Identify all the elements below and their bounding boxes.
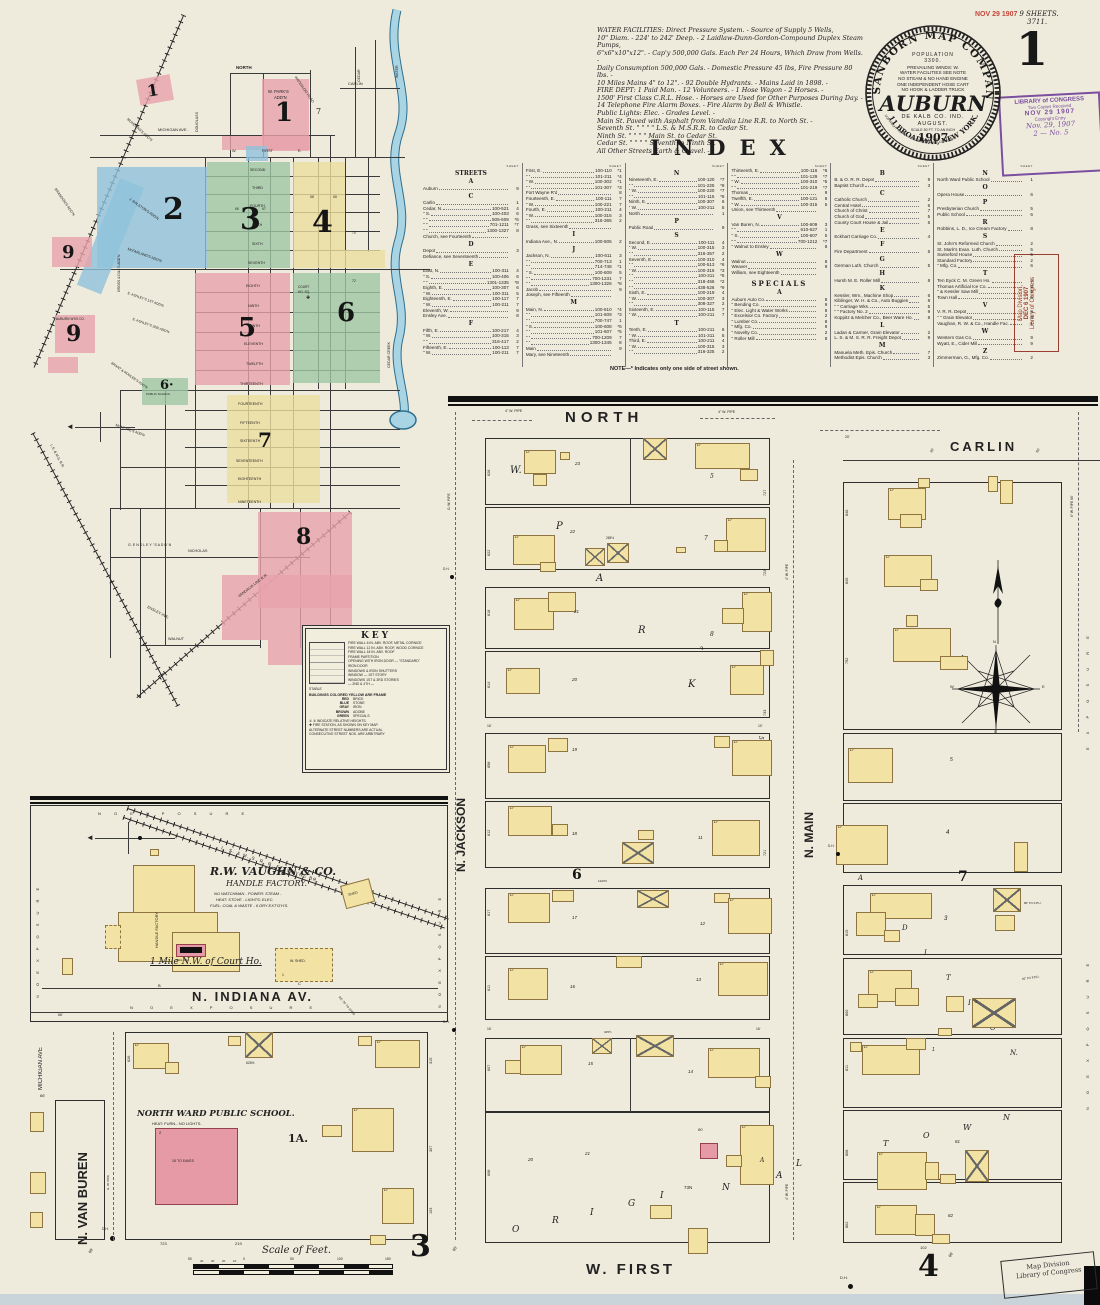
map-label: 50 <box>188 1258 192 1261</box>
map-label <box>630 1038 631 1112</box>
index-table: SHEETSTREETSAAuburn9CCarlin1Cedar, N.100… <box>420 163 1036 367</box>
building <box>592 1038 612 1054</box>
index-entry: German Luth. Church5 <box>834 263 930 269</box>
map-label: 22 <box>570 530 575 535</box>
index-column: SHEETFirst, E.100-110*1" "101-211*4" W.1… <box>522 163 625 367</box>
map-label <box>128 822 129 854</box>
map-label: ◄ <box>66 423 74 431</box>
building: D <box>513 535 555 565</box>
building <box>150 849 159 856</box>
hydrant-dot <box>450 575 454 579</box>
index-entry: Fire Department6 <box>834 249 930 255</box>
map-label: D <box>902 925 908 932</box>
index-entry: " Roller Mill8 <box>731 336 827 342</box>
map-label: 626 <box>128 1046 132 1062</box>
map-label: E. <box>298 150 302 154</box>
map-label: 611 <box>488 975 492 991</box>
index-entry: Robbins, L. D., Ice Cream Factory8 <box>937 226 1033 232</box>
map-label: NINETEENTH <box>238 501 261 505</box>
received-date: NOV 29 1907 <box>975 11 1017 18</box>
building <box>858 994 878 1008</box>
map-label: CEDAR CREEK <box>388 308 392 368</box>
index-section-letter: R <box>937 219 1033 226</box>
map-label: O <box>512 1226 519 1235</box>
map-label: 21 <box>574 610 579 615</box>
building <box>760 650 774 666</box>
pink-building <box>700 1143 718 1159</box>
index-section-letter: F <box>834 241 930 248</box>
map-label: N. <box>1010 1050 1018 1057</box>
map-label: D.H. <box>840 1276 848 1280</box>
map-label: 20 <box>572 678 577 683</box>
map-label: 11 <box>698 836 703 841</box>
specials-header: SPECIALS <box>731 279 827 288</box>
map-label: I <box>590 1209 594 1218</box>
map-label: NORTH <box>565 410 643 425</box>
map-label: 3 <box>944 916 947 922</box>
index-section-letter: Z <box>937 348 1033 355</box>
map-label: THIRTEENTH <box>240 383 263 387</box>
map-label: 802 <box>846 1212 850 1228</box>
map-label <box>472 420 532 421</box>
sheet-count: 9 SHEETS. <box>1019 10 1058 18</box>
map-label: G. E N S L E Y ' S A D D' N <box>128 544 171 548</box>
index-entry: " Mfg. Co.6 <box>937 263 1033 269</box>
building: D <box>732 740 772 776</box>
index-entry: " "316-3252 <box>629 349 725 355</box>
map-label: NICHOLAS <box>188 550 207 554</box>
building <box>322 1125 342 1137</box>
map-label: 1 <box>932 1048 935 1053</box>
map-label: E <box>1042 685 1045 689</box>
building <box>925 1162 939 1180</box>
building <box>906 615 918 627</box>
map-label: 815 <box>846 920 850 936</box>
sheet-label: SHEET <box>834 164 930 168</box>
map-label: N. MAIN <box>803 778 815 858</box>
map-label: W. FIRST <box>586 1262 675 1277</box>
index-entry: North Ward Public School1 <box>937 177 1033 183</box>
map-label: 20 <box>222 1260 225 1263</box>
map-label: DOUGLASS <box>196 88 200 132</box>
index-entry: North1 <box>629 211 725 217</box>
key-footnote: CONSECUTIVE STREET NOS. ARE ARBITRARY <box>309 732 443 737</box>
key-row: STABLE <box>309 687 443 692</box>
district-number: 1 <box>275 100 293 126</box>
map-label: PUBLIC SCHOOL <box>146 393 170 396</box>
map-label: 10 <box>233 1260 236 1263</box>
index-section-letter: W <box>731 251 827 258</box>
map-label: I <box>968 1000 971 1007</box>
building: D <box>375 1040 420 1068</box>
index-entry: " W.100-2117 <box>629 312 725 318</box>
building <box>938 1028 952 1036</box>
building: D <box>508 806 552 836</box>
index-section-letter: F <box>423 320 519 327</box>
map-label: SECOND <box>250 169 265 173</box>
map-label: FUEL: COAL & WASTE - 6 DRY EXT'G'H'S. <box>210 904 288 908</box>
index-section-letter: K <box>834 285 930 292</box>
building <box>972 998 1016 1028</box>
map-label: 81 <box>955 1140 960 1145</box>
map-label: 70 <box>352 232 356 235</box>
map-label: N <box>722 1184 730 1193</box>
map-label <box>193 1264 393 1269</box>
index-section-letter: D <box>423 241 519 248</box>
building <box>884 930 900 942</box>
map-label: TENTH <box>248 325 260 329</box>
building <box>714 540 728 552</box>
map-label: 16' <box>487 1028 491 1031</box>
map-label <box>0 1294 1100 1305</box>
map-label: 100 <box>337 1258 343 1261</box>
district-number: 9 <box>66 323 81 345</box>
building <box>906 1038 926 1050</box>
map-label: L <box>796 1160 802 1169</box>
map-label: FOURTEENTH <box>238 403 263 407</box>
map-label: HANDLE FACTORY. <box>226 880 307 888</box>
note-line: 10" Diam. - 224' to 242' Deep. - 2 Laidl… <box>597 35 865 50</box>
map-label <box>820 430 940 431</box>
map-label: 14 <box>688 1070 693 1075</box>
index-section-letter: S <box>629 232 725 239</box>
index-entry: " Walnut to Ensley8 <box>731 244 827 250</box>
index-section-letter: J <box>526 246 622 253</box>
building: D <box>712 820 760 856</box>
building <box>533 474 547 486</box>
map-label: A <box>858 875 863 882</box>
building <box>552 890 574 902</box>
map-label: 658 <box>488 752 492 768</box>
building <box>995 915 1015 931</box>
map-label: I <box>924 950 927 957</box>
map-label: N O E X P O S U R E <box>438 838 442 1008</box>
map-label <box>30 1012 448 1013</box>
map-label <box>230 73 310 74</box>
index-note: NOTE—* Indicates only one side of street… <box>610 366 739 372</box>
building <box>965 1150 989 1182</box>
building <box>505 1060 521 1074</box>
sheet-label: SHEET <box>629 164 725 168</box>
building <box>932 1234 950 1244</box>
index-entry: County Court House & Jail6 <box>834 220 930 226</box>
map-label: 68 <box>310 196 314 199</box>
map-label: G. W. PIPE <box>448 470 451 510</box>
building: D <box>508 968 548 1000</box>
map-label: W <box>950 685 954 689</box>
map-label: 73N <box>684 1186 692 1191</box>
map-label: NO WATCHMAN - POWER: STEAM - <box>214 892 281 896</box>
district <box>345 250 385 268</box>
index-entry: Hursh M. E. Roller Mill8 <box>834 278 930 284</box>
map-label: C <box>298 982 301 986</box>
index-section-letter: STREETS <box>423 170 519 177</box>
map-label: O <box>923 1132 930 1140</box>
index-entry: Baptist Church3 <box>834 183 930 189</box>
building <box>920 579 938 591</box>
index-entry: Zimmerman, G., Mfg. Co.2 <box>937 355 1033 361</box>
map-label: W. <box>232 150 236 154</box>
building: D <box>740 1125 774 1185</box>
building <box>918 478 930 488</box>
map-label: 103 <box>430 1198 434 1214</box>
map-label <box>165 390 166 645</box>
map-label: D.H. <box>828 845 834 848</box>
building <box>895 988 919 1006</box>
building <box>850 1042 862 1052</box>
building <box>30 1112 44 1132</box>
building: D <box>877 1152 927 1190</box>
index-section-letter: T <box>937 270 1033 277</box>
index-entry: Joseph, see Fifteenth <box>526 292 622 298</box>
map-label: 5 <box>710 474 714 480</box>
building <box>940 1174 956 1184</box>
map-label: ✚ <box>306 296 310 301</box>
map-label: N O E X P O S U R E <box>1086 780 1090 1110</box>
map-label: 18' TO EAVES <box>172 1160 194 1163</box>
district-number: 8 <box>296 526 311 548</box>
map-label: A <box>760 1158 764 1164</box>
index-section-letter: W <box>937 328 1033 335</box>
map-label <box>140 508 141 698</box>
map-label: 40 <box>200 1260 203 1263</box>
map-label: W. SHED. <box>290 960 306 964</box>
map-label: 315 <box>430 1048 434 1064</box>
map-label: SEVENTH <box>248 262 265 266</box>
map-label: A <box>596 574 603 584</box>
map-label: 617 <box>488 900 492 916</box>
building <box>105 925 121 949</box>
map-label: EIGHTEENTH <box>238 478 261 482</box>
district <box>48 357 78 373</box>
index-column: SHEETNNorth Ward Public School1OOpera Ho… <box>933 163 1036 367</box>
building <box>650 1205 672 1219</box>
map-label: 72 <box>352 280 356 283</box>
map-label <box>30 796 448 800</box>
map-label: 1 Mile N.W. of Court Ho. <box>150 958 262 967</box>
map-label: 265½ <box>606 537 614 540</box>
map-label: 628 <box>488 460 492 476</box>
building: D <box>695 443 750 469</box>
map-label <box>95 838 175 839</box>
map-label <box>355 47 356 157</box>
map-label: 66' <box>58 1014 63 1018</box>
building <box>915 1214 935 1236</box>
map-label: 626½ <box>246 1062 255 1065</box>
building <box>245 1032 273 1058</box>
map-label: HO. SQ. <box>298 291 310 294</box>
index-entry: Opera House6 <box>937 192 1033 198</box>
building: D <box>506 668 540 694</box>
building <box>548 738 568 752</box>
index-entry: L. S. & M. S. R. R. Freight Depot9 <box>834 335 930 341</box>
map-label: N O E X P O S U R E <box>36 838 40 998</box>
map-label: E. ASHLEY'S 1ST ADD'N <box>127 292 164 308</box>
map-label: 4" W. PIPE <box>786 1160 789 1200</box>
sanborn-map-sheet: 11234566·78997NORTHCARLINCEDARWATERWATER… <box>0 0 1100 1305</box>
map-label: 50 <box>290 1258 294 1261</box>
index-entry: " W.100-2117 <box>423 350 519 356</box>
map-label <box>193 1270 393 1275</box>
map-label: D.H. <box>443 568 449 571</box>
index-section-letter: T <box>629 320 725 327</box>
map-label: AUBURN W'KS CO. <box>56 318 85 321</box>
map-label: K <box>688 680 695 690</box>
building <box>688 1228 708 1254</box>
hydrant-dot <box>836 852 840 856</box>
index-column: SHEETNNineteenth, E.100-120*7" "101-225*… <box>625 163 728 367</box>
map-label: G. W. PIPE <box>107 1150 110 1190</box>
city-block <box>843 482 1062 730</box>
map-label: 66' <box>88 1247 94 1254</box>
map-label: T <box>946 975 951 982</box>
map-label: N <box>993 640 996 644</box>
index-entry: Wyatt, E., Cider Mill9 <box>937 341 1033 347</box>
building: D <box>352 1108 394 1152</box>
note-line: 6"x6"x10"x12". - Cap'y 500,000 Gals. Eac… <box>597 50 865 65</box>
building: D <box>875 1205 917 1235</box>
building <box>638 830 654 840</box>
index-section-letter: C <box>834 190 930 197</box>
map-label: T <box>883 1140 888 1148</box>
map-label: THIRD <box>252 187 263 191</box>
building: D <box>726 518 766 552</box>
index-section-letter: E <box>834 227 930 234</box>
index-entry: Town Hall6 <box>937 295 1033 301</box>
index-section-letter: G <box>834 256 930 263</box>
district-number: 9 <box>62 244 75 262</box>
building <box>540 562 556 572</box>
index-section-letter: I <box>526 231 622 238</box>
index-entry: Ensley Ave.8 <box>423 313 519 319</box>
district-number: 3 <box>240 205 261 235</box>
map-label: 30' <box>930 448 935 454</box>
seal-year: 1907 <box>878 132 988 143</box>
map-label: FIRST <box>262 150 273 154</box>
district-number: 2 <box>163 195 184 225</box>
map-label: 15 <box>588 1062 593 1067</box>
building <box>900 514 922 528</box>
index-entry: Church, see Fourteenth <box>423 234 519 240</box>
map-label: W. <box>510 466 522 476</box>
district-number: 4 <box>918 1252 939 1282</box>
map-label: A <box>776 1172 783 1181</box>
index-entry: Mary, see Nineteenth <box>526 352 622 358</box>
building: D <box>730 665 764 695</box>
index-column: SHEETThirteenth, E.100-116*6" "101-129*7… <box>727 163 830 367</box>
building: D <box>836 825 888 865</box>
map-label: HEAT: FURN.- NO LIGHTS. <box>152 1122 201 1126</box>
map-label: 16 <box>570 985 575 990</box>
legend-key-box: KEY FIRE WALL 6 IN. ABV. ROOF, METAL COR… <box>305 628 447 770</box>
map-label <box>113 1032 114 1240</box>
map-label: 19 <box>572 748 577 753</box>
map-label: 1A. <box>288 1133 308 1144</box>
building: D <box>708 1048 760 1078</box>
index-section-letter: A <box>731 289 827 296</box>
map-label: NINTH <box>248 305 259 309</box>
hydrant-dot <box>452 1028 456 1032</box>
map-label: 80 <box>698 1128 702 1132</box>
index-entry: Eckhart Carriage Co.4 <box>834 234 930 240</box>
seal-city-name: AUBURN <box>878 93 988 114</box>
map-label: WATER <box>396 48 400 78</box>
map-label: N. INDIANA AV. <box>192 990 313 1003</box>
map-label <box>368 157 369 252</box>
index-section-letter: H <box>834 270 930 277</box>
map-label: CARLIN <box>348 82 363 86</box>
district <box>227 395 320 503</box>
map-label: 18 <box>572 832 577 837</box>
map-label: 66' <box>948 1251 954 1258</box>
building: D <box>382 1188 414 1224</box>
building: D <box>742 592 772 632</box>
map-label: TWELFTH <box>246 363 263 367</box>
index-section-letter: M <box>834 342 930 349</box>
map-label <box>60 269 430 270</box>
map-label: ELEVENTH <box>244 343 263 347</box>
building <box>622 842 654 864</box>
building <box>740 469 758 481</box>
map-label: 1 <box>282 974 284 978</box>
map-label: GROSS & DILL'S ADD'N <box>118 222 121 292</box>
map-label: 608 <box>488 1160 492 1176</box>
key-color-table: REDBRICKBLUESTONEGRAYIRONBROWNADOBEGREEN… <box>309 697 443 719</box>
building <box>1000 480 1013 504</box>
map-label: 622 <box>488 540 492 556</box>
index-section-letter: V <box>731 214 827 221</box>
map-label: 800 <box>846 1000 850 1016</box>
map-label: 846 <box>846 500 850 516</box>
building <box>552 824 568 836</box>
map-label: 618 <box>488 600 492 616</box>
map-label: 13 <box>696 978 701 983</box>
building <box>228 1036 241 1046</box>
map-label: R.W. VAUGHN & CO. <box>210 866 336 877</box>
map-label: 307 <box>430 1136 434 1152</box>
map-label: 8 <box>710 632 714 638</box>
map-label: FIFTEENTH <box>240 422 260 426</box>
map-label: 10' <box>758 725 762 728</box>
map-label <box>375 40 376 157</box>
index-title: INDEX <box>560 135 890 160</box>
map-label <box>340 88 400 89</box>
map-label: N O E X P O S U R E <box>130 1006 320 1010</box>
map-label <box>843 460 1100 461</box>
map-label: MICHIGAN AVE. <box>158 128 188 132</box>
map-label: 607 <box>488 1055 492 1071</box>
index-entry: Vaughan, R. W. & Co., Handle Fac.1 <box>937 321 1033 327</box>
building <box>1014 842 1028 872</box>
index-section-letter: C <box>423 193 519 200</box>
map-label <box>310 70 311 157</box>
map-label: 721 <box>764 840 768 856</box>
building <box>370 1235 386 1245</box>
map-label: 1223½ <box>598 880 607 883</box>
map-label: P <box>556 522 563 532</box>
sheet-label: SHEET <box>937 164 1033 168</box>
map-label: B <box>158 984 161 988</box>
map-label: 723 <box>764 560 768 576</box>
map-label: EIGHTH <box>246 285 260 289</box>
map-label: 82 <box>948 1214 953 1219</box>
building <box>548 592 576 612</box>
index-entry: Indiana Ave., N.100-5052 <box>526 239 622 245</box>
map-label: 723 <box>160 1242 167 1246</box>
map-label: 80' TO F.P.U. <box>1024 902 1041 905</box>
index-section-letter: N <box>937 170 1033 177</box>
map-label: COURT <box>298 286 309 289</box>
